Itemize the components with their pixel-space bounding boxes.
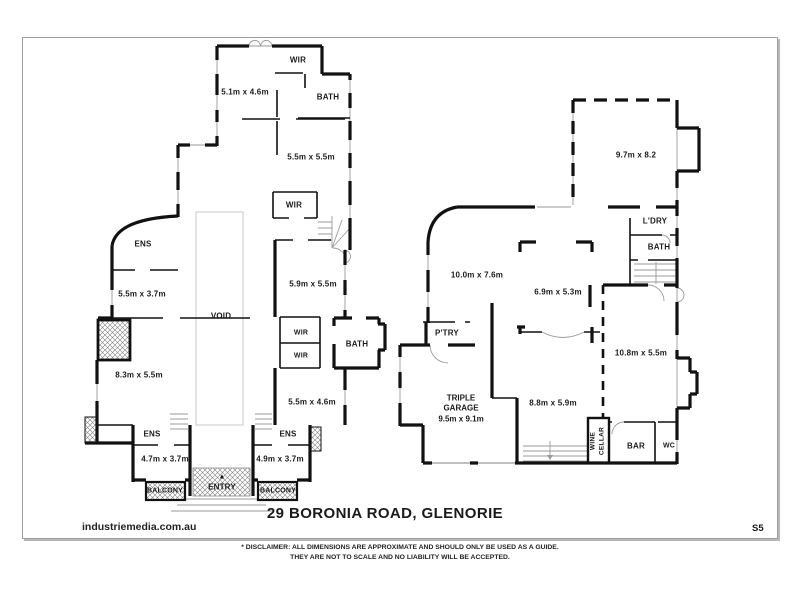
sheet-code: S5 — [752, 523, 764, 534]
ledge-hatch-right — [311, 427, 321, 451]
room-label-balcony-right: BALCONY — [260, 488, 296, 495]
room-label-entry: ENTRY — [208, 483, 236, 492]
garage-line1: TRIPLE — [438, 393, 483, 403]
garage-line3: 9.5m x 9.1m — [438, 414, 483, 424]
disclaimer-line1: * DISCLAIMER: ALL DIMENSIONS ARE APPROXI… — [0, 544, 800, 551]
dim-label-bed6: 5.5m x 4.6m — [288, 398, 336, 407]
dim-label-rumpus: 10.8m x 5.5m — [615, 349, 667, 358]
dim-label-bed5: 8.3m x 5.5m — [115, 371, 163, 380]
stair-direction-arrow — [547, 455, 553, 460]
room-label-wir-top: WIR — [290, 56, 306, 65]
dim-label-bed7: 4.7m x 3.7m — [141, 455, 189, 464]
dim-label-family: 6.9m x 5.3m — [534, 288, 582, 297]
dim-label-bed8: 4.9m x 3.7m — [256, 455, 304, 464]
room-label-ldry: L'DRY — [643, 217, 667, 226]
room-label-bath-mid: BATH — [346, 340, 368, 349]
room-label-ptry: P'TRY — [435, 329, 459, 338]
wine-line1: WINE — [589, 427, 598, 455]
room-label-void: VOID — [211, 312, 231, 321]
room-label-bath-top: BATH — [317, 93, 339, 102]
ledge-hatch-left — [85, 417, 97, 443]
page-title: 29 BORONIA ROAD, GLENORIE — [0, 505, 770, 522]
entry-arrow-icon: ▲ — [219, 474, 226, 481]
room-label-wir-a: WIR — [294, 330, 308, 337]
room-label-balcony-left: BALCONY — [147, 488, 183, 495]
dim-label-bed1: 5.1m x 4.6m — [221, 88, 269, 97]
garage-line2: GARAGE — [438, 404, 483, 414]
dim-label-living1: 9.7m x 8.2 — [616, 151, 656, 160]
floorplan-page: WIR 5.1m x 4.6m BATH 5.5m x 5.5m WIR ENS… — [0, 0, 800, 600]
room-label-ens-left: ENS — [134, 240, 151, 249]
dim-label-bed4: 5.9m x 5.5m — [289, 280, 337, 289]
room-label-wir-mid: WIR — [286, 201, 302, 210]
room-label-ens-bottom-left: ENS — [143, 430, 160, 439]
room-label-wir-b: WIR — [294, 353, 308, 360]
watermark: industriemedia.com.au — [82, 521, 196, 533]
room-label-ens-bottom-right: ENS — [279, 430, 296, 439]
room-label-garage: TRIPLE GARAGE 9.5m x 9.1m — [438, 393, 483, 424]
dim-label-bed2: 5.5m x 5.5m — [287, 153, 335, 162]
room-label-wine-cellar: WINE CELLAR — [589, 427, 608, 455]
room-label-bar: BAR — [627, 442, 645, 451]
disclaimer-line2: THEY ARE NOT TO SCALE AND NO LIABILITY W… — [0, 554, 800, 561]
dim-label-kitchen: 8.8m x 5.9m — [529, 399, 577, 408]
planter-hatch — [98, 320, 130, 360]
upper-level-plan — [85, 40, 385, 511]
dim-label-bed3: 5.5m x 3.7m — [118, 290, 166, 299]
dim-label-living2: 10.0m x 7.6m — [451, 271, 503, 280]
room-label-bath-ground: BATH — [648, 243, 670, 252]
wine-line2: CELLAR — [598, 427, 607, 455]
room-label-wc: WC — [663, 443, 675, 450]
